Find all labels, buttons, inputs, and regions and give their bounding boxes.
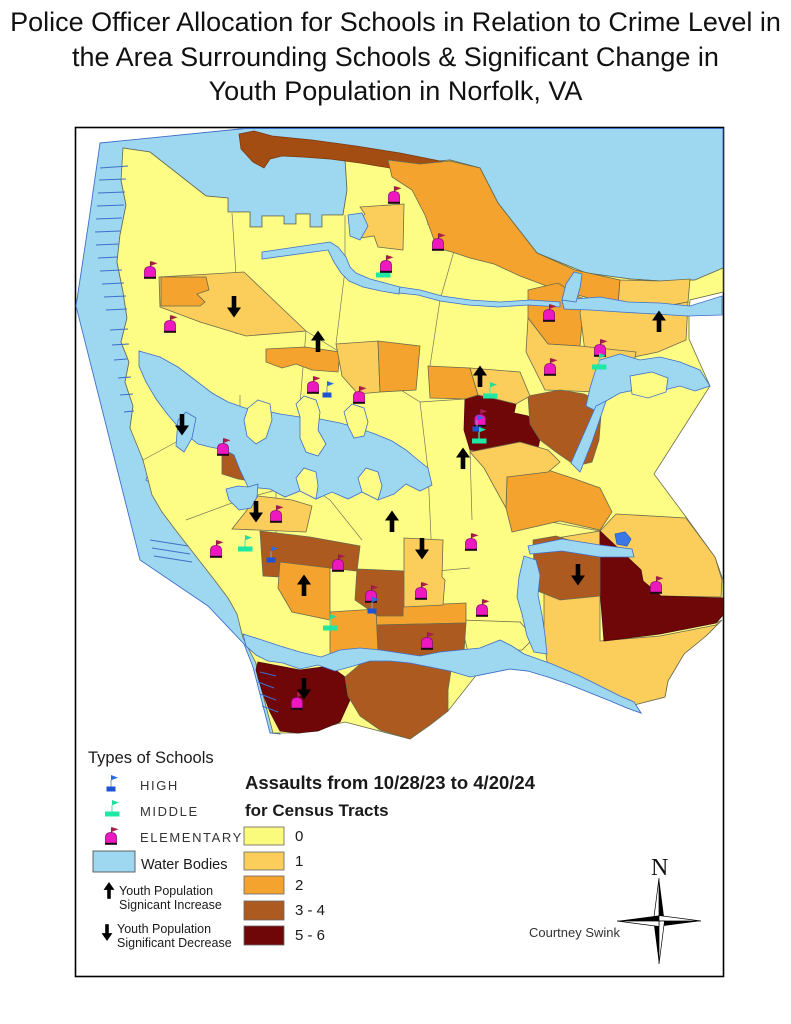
svg-text:N: N [651,855,668,881]
svg-text:Youth Population: Youth Population [119,884,213,898]
svg-text:Types of Schools: Types of Schools [88,749,214,767]
svg-text:Significant Decrease: Significant Decrease [117,936,232,950]
svg-text:MIDDLE: MIDDLE [140,804,199,819]
svg-text:Youth Population: Youth Population [117,922,211,936]
svg-text:HIGH: HIGH [140,778,179,793]
svg-text:Courtney Swink: Courtney Swink [529,925,621,940]
svg-text:Water Bodies: Water Bodies [141,857,228,873]
svg-text:Assaults from 10/28/23 to 4/20: Assaults from 10/28/23 to 4/20/24 [245,772,536,793]
svg-text:0: 0 [295,828,303,845]
svg-text:Signicant Increase: Signicant Increase [119,898,222,912]
svg-text:for Census Tracts: for Census Tracts [245,801,389,820]
svg-text:2: 2 [295,877,303,894]
svg-text:5 - 6: 5 - 6 [295,927,325,944]
svg-text:ELEMENTARY: ELEMENTARY [140,830,243,845]
svg-text:1: 1 [295,853,303,870]
svg-text:3 - 4: 3 - 4 [295,902,325,919]
